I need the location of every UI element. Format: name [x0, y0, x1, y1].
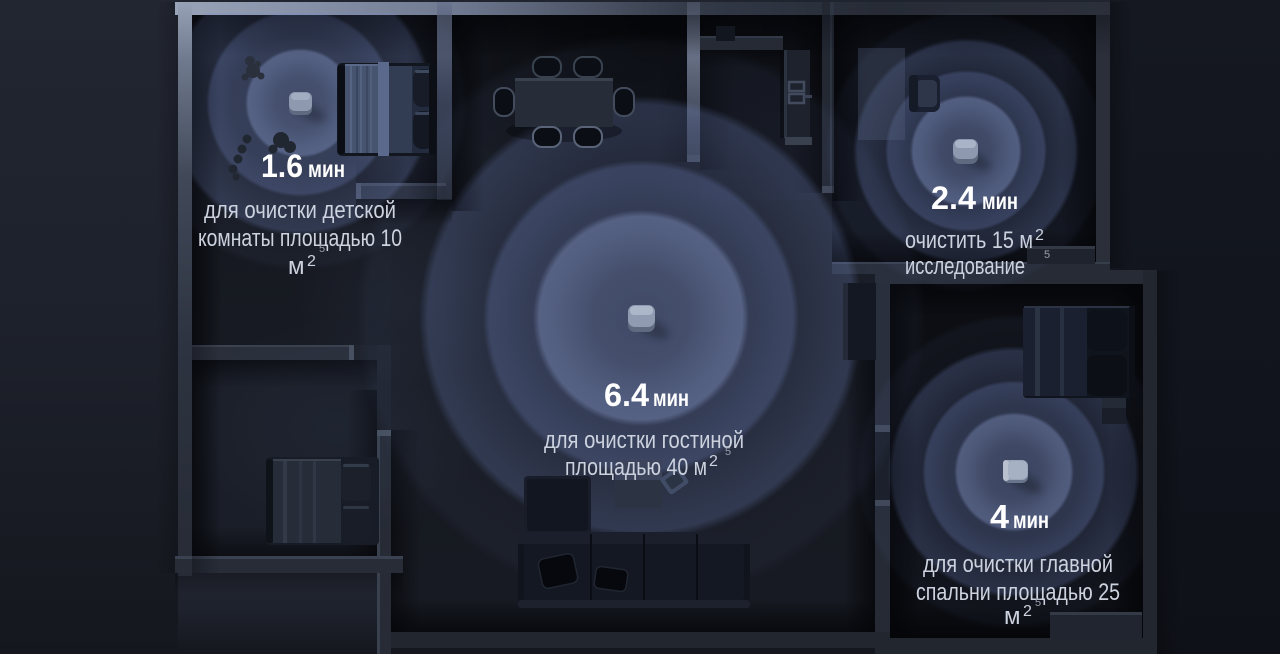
svg-text:исследование: исследование: [905, 253, 1025, 280]
svg-text:мин: мин: [308, 156, 345, 182]
svg-text:очистить 15 м: очистить 15 м: [905, 227, 1033, 254]
svg-text:2: 2: [1035, 227, 1044, 244]
svg-text:6.4: 6.4: [604, 377, 649, 413]
svg-text:мин: мин: [653, 385, 689, 411]
svg-text:5: 5: [1044, 249, 1050, 261]
svg-text:2: 2: [1023, 603, 1032, 620]
svg-text:мин: мин: [982, 188, 1018, 214]
svg-text:5: 5: [725, 446, 731, 458]
svg-text:площадью 40 м: площадью 40 м: [565, 454, 707, 481]
svg-text:2: 2: [307, 253, 316, 270]
svg-text:2.4: 2.4: [931, 180, 976, 216]
svg-text:4: 4: [990, 498, 1010, 535]
svg-text:мин: мин: [1013, 507, 1049, 533]
svg-text:5: 5: [319, 243, 325, 255]
svg-text:м: м: [288, 253, 305, 280]
svg-text:5: 5: [1035, 597, 1041, 609]
svg-text:для очистки детской: для очистки детской: [204, 197, 396, 224]
svg-text:для очистки главной: для очистки главной: [923, 551, 1113, 578]
svg-text:м: м: [1004, 603, 1021, 630]
svg-text:для очистки гостиной: для очистки гостиной: [544, 427, 744, 454]
svg-text:спальни площадью 25: спальни площадью 25: [916, 579, 1120, 606]
svg-text:1.6: 1.6: [261, 148, 303, 184]
svg-text:комнаты площадью 10: комнаты площадью 10: [198, 225, 402, 252]
svg-text:2: 2: [709, 453, 718, 470]
